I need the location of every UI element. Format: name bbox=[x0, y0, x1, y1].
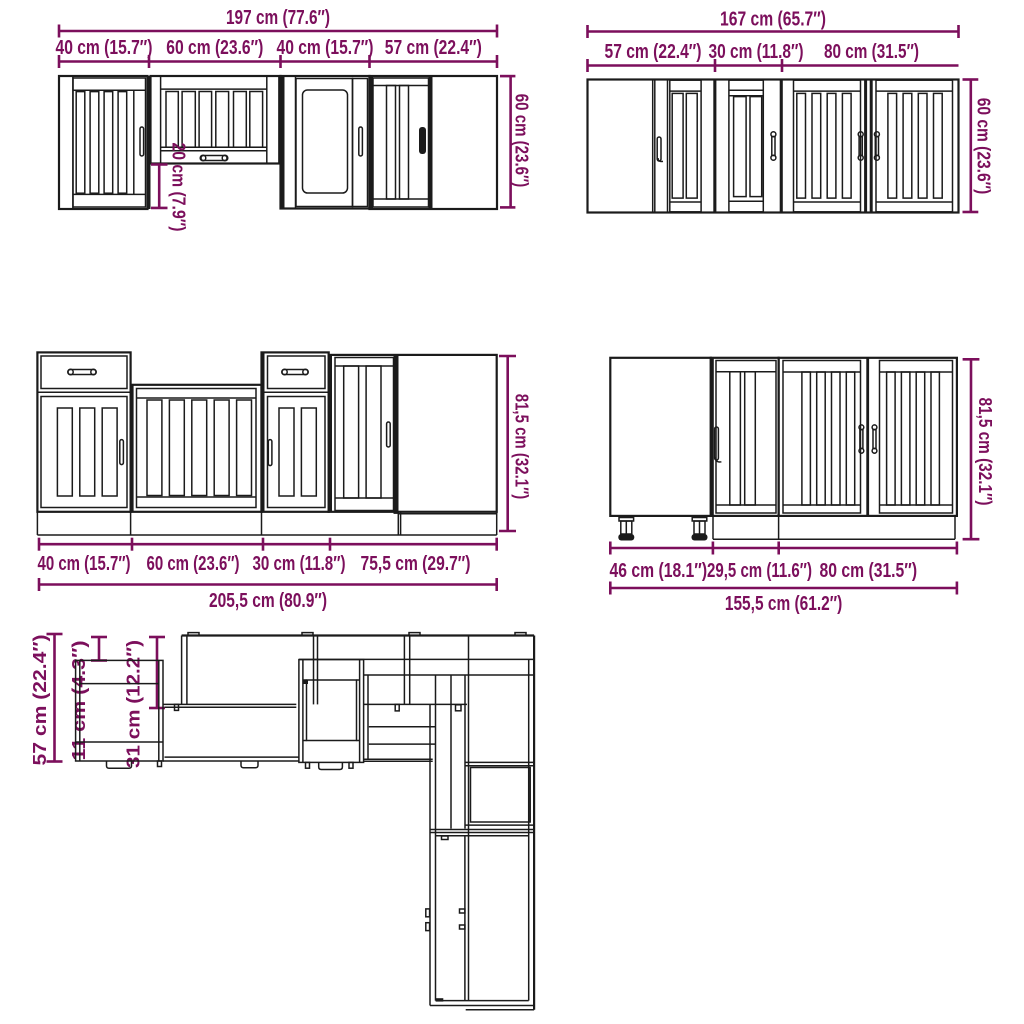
svg-text:40 cm (15.7″): 40 cm (15.7″) bbox=[38, 553, 131, 575]
svg-text:30 cm (11.8″): 30 cm (11.8″) bbox=[253, 553, 346, 575]
svg-text:29,5 cm (11.6″): 29,5 cm (11.6″) bbox=[707, 560, 812, 582]
svg-text:57 cm (22.4″): 57 cm (22.4″) bbox=[605, 41, 702, 63]
svg-text:60 cm (23.6″): 60 cm (23.6″) bbox=[973, 98, 994, 195]
svg-text:57 cm (22.4″): 57 cm (22.4″) bbox=[385, 37, 482, 59]
svg-text:80 cm (31.5″): 80 cm (31.5″) bbox=[824, 41, 919, 63]
svg-text:60 cm (23.6″): 60 cm (23.6″) bbox=[147, 553, 240, 575]
svg-text:40 cm (15.7″): 40 cm (15.7″) bbox=[277, 37, 374, 59]
svg-text:81,5 cm (32.1″): 81,5 cm (32.1″) bbox=[511, 394, 532, 500]
svg-text:30 cm (11.8″): 30 cm (11.8″) bbox=[709, 41, 804, 63]
svg-text:31 cm (12.2″): 31 cm (12.2″) bbox=[123, 640, 144, 768]
svg-text:205,5 cm (80.9″): 205,5 cm (80.9″) bbox=[209, 590, 327, 612]
svg-text:20 cm (7.9″): 20 cm (7.9″) bbox=[168, 143, 189, 232]
svg-text:46 cm (18.1″): 46 cm (18.1″) bbox=[610, 560, 708, 582]
svg-text:197 cm (77.6″): 197 cm (77.6″) bbox=[226, 7, 330, 29]
svg-text:75,5 cm (29.7″): 75,5 cm (29.7″) bbox=[361, 553, 471, 575]
svg-text:60 cm (23.6″): 60 cm (23.6″) bbox=[166, 37, 263, 59]
svg-text:167 cm (65.7″): 167 cm (65.7″) bbox=[720, 9, 826, 31]
svg-text:57 cm (22.4″): 57 cm (22.4″) bbox=[29, 635, 50, 766]
svg-text:60 cm (23.6″): 60 cm (23.6″) bbox=[511, 94, 532, 188]
svg-text:40 cm (15.7″): 40 cm (15.7″) bbox=[56, 37, 153, 59]
svg-text:81,5 cm (32.1″): 81,5 cm (32.1″) bbox=[975, 398, 996, 506]
svg-text:155,5 cm (61.2″): 155,5 cm (61.2″) bbox=[725, 593, 843, 615]
svg-text:80 cm (31.5″): 80 cm (31.5″) bbox=[820, 560, 918, 582]
